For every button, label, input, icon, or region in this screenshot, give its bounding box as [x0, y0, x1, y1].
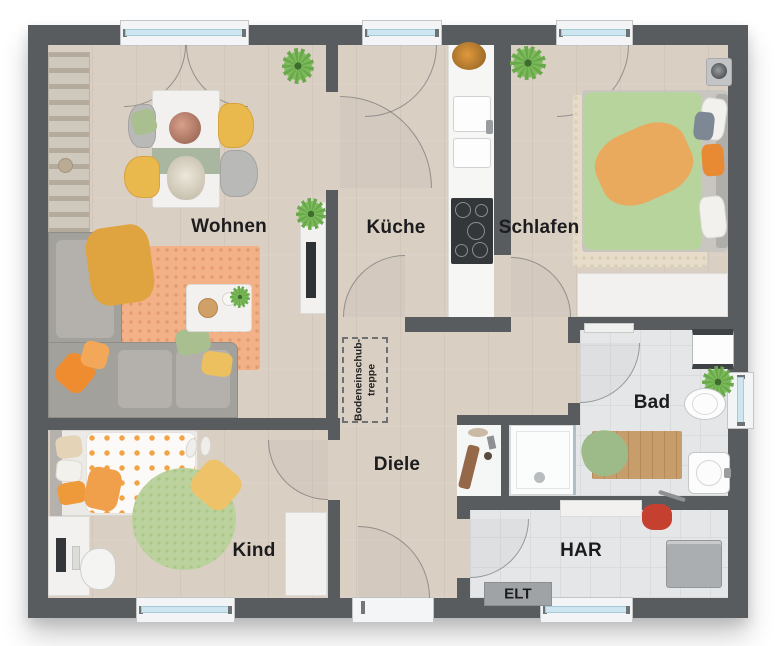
tv: [306, 242, 316, 298]
table-centerpiece: [169, 112, 201, 144]
burner-icon: [475, 204, 488, 217]
bowl: [198, 298, 218, 318]
fruit-bowl: [452, 42, 486, 70]
entrance-door-handle-icon: [361, 601, 365, 614]
wall-kueche-diele: [405, 317, 511, 332]
wall-har-west-stub: [457, 510, 470, 519]
wall-wohnen-kueche-upper: [326, 45, 338, 92]
wall-kind-diele-stub: [328, 430, 340, 440]
wall-bad-west-stub: [568, 330, 580, 343]
bedroom-dresser: [577, 273, 728, 317]
paper-dispenser: [692, 329, 734, 369]
room-label-diele: Diele: [374, 454, 420, 476]
burner-icon: [455, 244, 468, 257]
wall-niche-shower-divider: [501, 425, 509, 496]
window-glass: [561, 29, 628, 36]
utility-shelf: [560, 500, 642, 517]
attic-stairs-label: Bodeneinschub- treppe: [352, 339, 377, 421]
burner-icon: [455, 202, 471, 218]
kitchen-counter: [448, 45, 494, 317]
wall-har-west: [457, 578, 470, 598]
faucet-icon: [724, 468, 731, 478]
window-kueche: [362, 20, 442, 46]
shower-glass: [573, 425, 576, 495]
dining-chair-yellow: [124, 156, 160, 198]
sofa-cushion: [118, 350, 172, 408]
shoes-icon: [468, 428, 488, 437]
room-label-har: HAR: [560, 540, 602, 562]
plant: [510, 46, 546, 80]
room-label-bad: Bad: [634, 392, 671, 414]
pillow-beige: [55, 434, 84, 459]
window-glass: [545, 606, 628, 613]
burner-icon: [467, 222, 485, 240]
floor-plan: Bodeneinschub- treppe Wohnen Küche Schla…: [0, 0, 775, 646]
niche-item: [484, 452, 492, 460]
attic-stairs-box: Bodeneinschub- treppe: [342, 337, 388, 423]
window-glass: [737, 377, 744, 424]
shower-drain-icon: [534, 472, 545, 483]
wall-niche-top: [457, 415, 580, 425]
room-label-elt: ELT: [504, 586, 532, 603]
keyboard: [72, 546, 80, 570]
window-glass: [141, 606, 230, 613]
window-kind: [136, 597, 235, 623]
speaker-icon: [711, 63, 727, 79]
pillow-checker: [693, 111, 716, 141]
window-glass: [367, 29, 437, 36]
window-har: [540, 597, 633, 623]
wall-wohnen-kueche-lower: [326, 190, 338, 430]
dining-chair-yellow: [218, 103, 254, 148]
room-label-wohnen: Wohnen: [191, 216, 267, 238]
room-label-kueche: Küche: [366, 217, 425, 239]
appliance-box: [666, 540, 722, 588]
room-label-schlafen: Schlafen: [499, 217, 580, 239]
window-wohnen: [120, 20, 249, 46]
faucet-icon: [486, 120, 493, 134]
burner-icon: [472, 242, 488, 258]
pillow-white: [55, 459, 83, 483]
dining-chair-gray: [220, 150, 258, 197]
window-glass: [125, 29, 244, 36]
pillow-yellow: [200, 350, 233, 378]
wall-wohnen-kind: [48, 418, 340, 430]
room-label-kind: Kind: [232, 540, 275, 562]
bookshelf-vase: [58, 158, 73, 173]
vacuum-red: [642, 504, 672, 530]
desk-chair: [80, 548, 116, 590]
toilet-seat-icon: [692, 393, 718, 415]
table-flowers: [167, 156, 205, 200]
pillow-white: [698, 195, 728, 239]
wall-kind-diele: [328, 500, 340, 598]
monitor: [56, 538, 66, 572]
window-schlafen: [556, 20, 633, 46]
plant: [282, 48, 314, 84]
plant-small: [230, 286, 250, 308]
kid-wardrobe: [285, 512, 327, 596]
blanket-mustard: [83, 222, 157, 308]
plant: [296, 198, 326, 230]
pillow-orange: [701, 143, 725, 176]
towel-radiator: [584, 323, 634, 333]
basin-bowl-icon: [696, 460, 722, 486]
sink-basin: [453, 138, 491, 168]
